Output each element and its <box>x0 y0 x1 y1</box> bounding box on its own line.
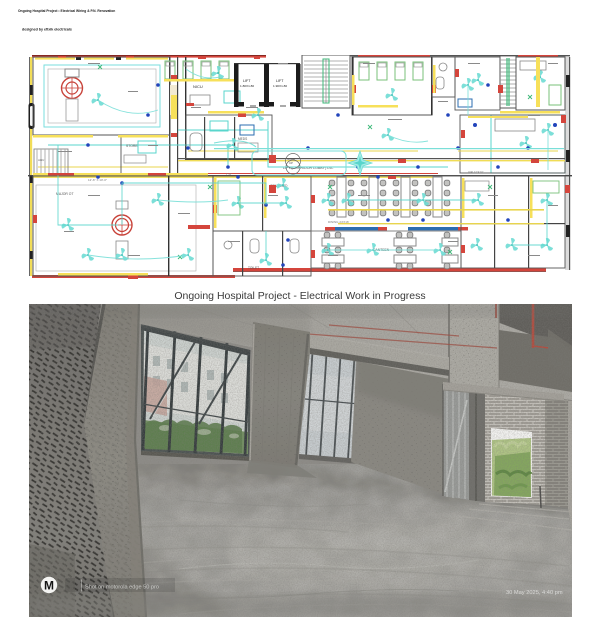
svg-text:7'-0": 7'-0" <box>226 172 232 176</box>
svg-text:1.80X1.80: 1.80X1.80 <box>240 84 254 88</box>
svg-text:MEDS: MEDS <box>238 137 247 141</box>
svg-text:LIFT: LIFT <box>276 79 284 83</box>
svg-text:TOILET: TOILET <box>248 266 259 270</box>
svg-text:MAJOR OT: MAJOR OT <box>56 192 74 196</box>
svg-text:LIFT: LIFT <box>243 79 251 83</box>
svg-text:M: M <box>44 578 54 592</box>
svg-text:UP: UP <box>289 161 293 165</box>
svg-text:Shot on motorola edge 50 pro: Shot on motorola edge 50 pro <box>85 585 159 591</box>
svg-text:NICU: NICU <box>193 84 203 89</box>
svg-text:12'-6" X 10'-0": 12'-6" X 10'-0" <box>88 178 107 182</box>
svg-text:AHU: AHU <box>38 158 44 162</box>
svg-text:STORE: STORE <box>126 144 138 148</box>
svg-text:VIP 12'X10': VIP 12'X10' <box>468 170 484 174</box>
svg-text:30 May 2025, 4:40 pm: 30 May 2025, 4:40 pm <box>506 590 563 596</box>
svg-text:1.90X1.80: 1.90X1.80 <box>273 84 287 88</box>
